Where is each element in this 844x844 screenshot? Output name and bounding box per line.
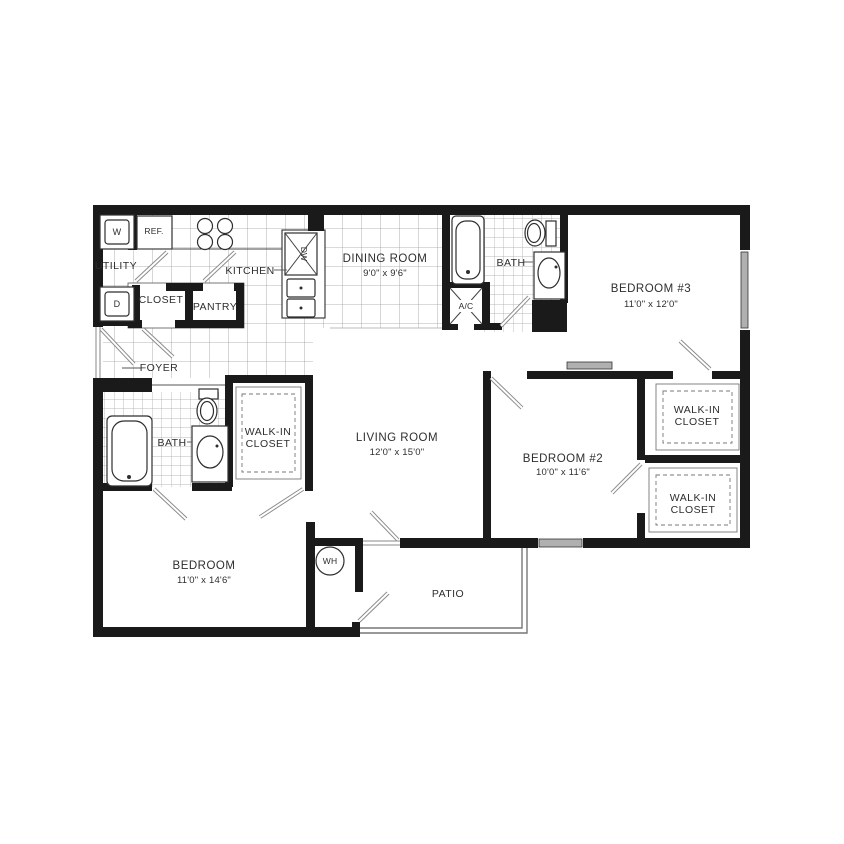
master-bedroom-label: BEDROOM <box>173 560 236 572</box>
dryer-label: D <box>114 299 121 309</box>
foyer-label: FOYER <box>140 362 178 374</box>
walkin-closet-master-label-line1: WALK-IN <box>245 426 292 438</box>
dishwasher-label: DW <box>299 247 309 262</box>
living-room-label: LIVING ROOM <box>356 432 438 444</box>
utility-label: UTILITY <box>95 260 137 272</box>
patio-label: PATIO <box>432 588 464 600</box>
floor-plan-page: UTILITY KITCHEN CLOSET PANTRY FOYER DINI… <box>0 0 844 844</box>
ac-label: A/C <box>459 301 474 311</box>
walkin-closet-bed2-label-line1: WALK-IN <box>670 492 717 504</box>
kitchen-label: KITCHEN <box>225 265 274 277</box>
dining-room-label: DINING ROOM <box>343 253 428 265</box>
bedroom2-window <box>539 539 582 547</box>
lower-vanity-sink-icon <box>192 426 228 482</box>
upper-bath-label: BATH <box>496 257 525 269</box>
upper-vanity-sink-icon <box>534 252 565 299</box>
bedroom3-window <box>741 252 748 328</box>
walkin-closet-bed3-label-line1: WALK-IN <box>674 404 721 416</box>
refrigerator-label: REF. <box>144 226 163 236</box>
pantry-label: PANTRY <box>193 301 237 313</box>
dining-room-dims: 9'0" x 9'6" <box>363 268 407 279</box>
master-bedroom-dims: 11'0" x 14'6" <box>177 575 231 586</box>
bedroom3-dims: 11'0" x 12'0" <box>624 299 678 310</box>
bedroom2-dims: 10'0" x 11'6" <box>536 467 590 478</box>
water-heater-label: WH <box>323 556 338 566</box>
upper-bathtub-icon <box>452 216 484 284</box>
bedroom2-label: BEDROOM #2 <box>523 453 603 465</box>
floor-plan-svg: UTILITY KITCHEN CLOSET PANTRY FOYER DINI… <box>0 0 844 844</box>
living-room-dims: 12'0" x 15'0" <box>370 447 425 458</box>
lower-bathtub-icon <box>107 416 152 486</box>
walkin-closet-master-label-line2: CLOSET <box>246 438 291 450</box>
bedroom-pass-through <box>567 362 612 369</box>
closet-label: CLOSET <box>139 294 184 306</box>
foyer-tile-floor <box>103 328 313 378</box>
lower-bath-label: BATH <box>157 437 186 449</box>
lower-toilet-icon <box>197 389 218 424</box>
bedroom3-label: BEDROOM #3 <box>611 283 691 295</box>
upper-toilet-icon <box>525 220 556 246</box>
walkin-closet-bed2-label-line2: CLOSET <box>671 504 716 516</box>
washer-label: W <box>113 227 122 237</box>
walkin-closet-bed3-label-line2: CLOSET <box>675 416 720 428</box>
